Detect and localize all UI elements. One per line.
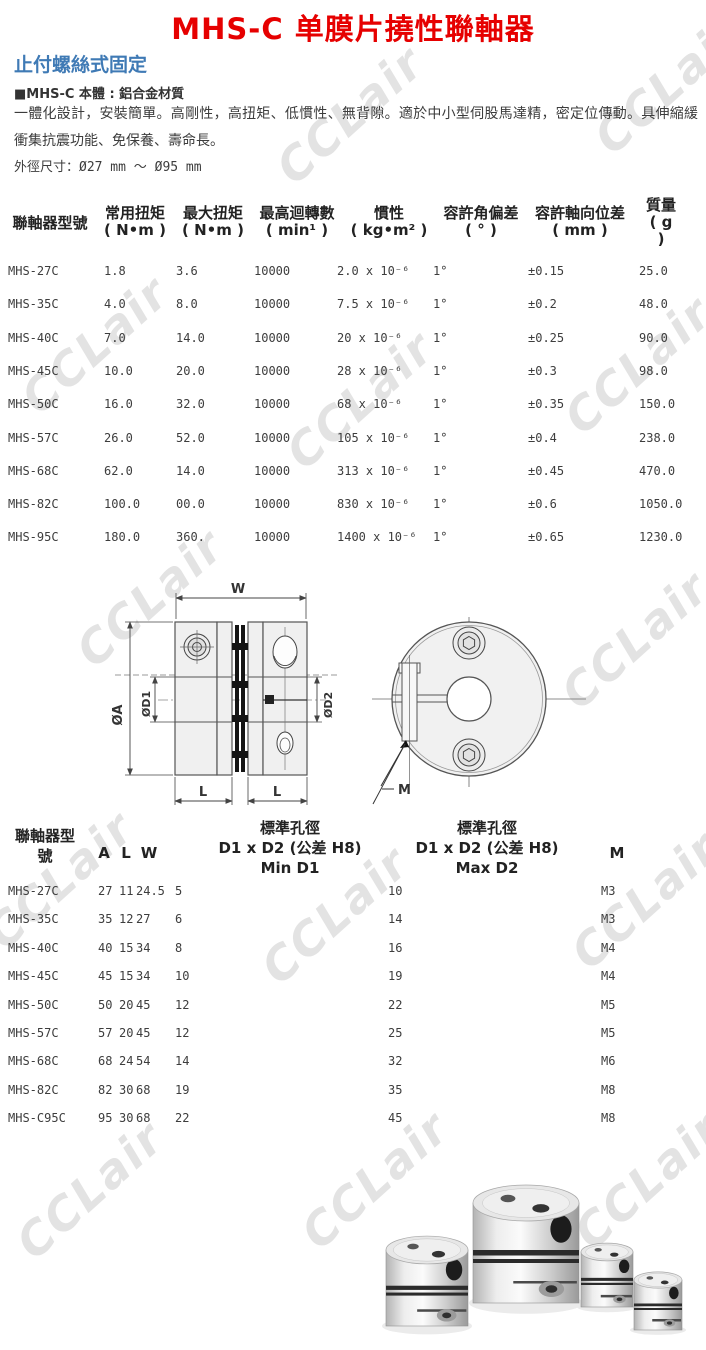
value-cell: 16.0 [104, 397, 133, 411]
value-cell: 11 [119, 884, 133, 898]
value-cell: ±0.2 [528, 297, 557, 311]
value-cell: 10000 [254, 431, 290, 445]
value-cell: 30 [119, 1111, 133, 1125]
value-cell: 5 [175, 884, 182, 898]
dim-label-l-left: L [199, 785, 207, 800]
model-cell: MHS-27C [8, 884, 59, 898]
product-description: 一體化設計，安裝簡單。高剛性，高扭矩、低慣性、無背隙。適於中小型伺股馬達精，密定… [14, 101, 698, 155]
model-cell: MHS-57C [8, 431, 59, 445]
value-cell: ±0.15 [528, 264, 564, 278]
value-cell: M8 [601, 1083, 615, 1097]
dim-label-l-right: L [273, 785, 281, 800]
value-cell: 62.0 [104, 464, 133, 478]
value-cell: 150.0 [639, 397, 675, 411]
dim-label-w: W [231, 582, 245, 597]
value-cell: 14 [388, 912, 402, 926]
value-cell: 360. [176, 530, 205, 544]
value-cell: 1° [433, 297, 447, 311]
value-cell: 27 [136, 912, 150, 926]
value-cell: 45 [98, 969, 112, 983]
value-cell: 1050.0 [639, 497, 682, 511]
model-cell: MHS-40C [8, 331, 59, 345]
value-cell: 8.0 [176, 297, 198, 311]
value-cell: 105 x 10⁻⁶ [337, 431, 409, 445]
coupling-photo-item [382, 1236, 472, 1334]
value-cell: 68 [136, 1111, 150, 1125]
value-cell: 12 [175, 998, 189, 1012]
page-title: MHS-C 单膜片撓性聯軸器 [0, 6, 706, 48]
column-header: 聯軸器型號 [12, 215, 87, 232]
value-cell: 20 [119, 1026, 133, 1040]
column-header: 容許角偏差 ( ° ) [443, 205, 518, 239]
value-cell: 470.0 [639, 464, 675, 478]
value-cell: 1.8 [104, 264, 126, 278]
value-cell: 1° [433, 364, 447, 378]
value-cell: 10000 [254, 464, 290, 478]
column-header: 標準孔徑 D1 x D2 (公差 H8) Max D2 [415, 818, 558, 878]
value-cell: 52.0 [176, 431, 205, 445]
value-cell: 180.0 [104, 530, 140, 544]
coupling-photo-item [577, 1243, 637, 1312]
value-cell: 1° [433, 264, 447, 278]
value-cell: 20.0 [176, 364, 205, 378]
value-cell: M3 [601, 912, 615, 926]
value-cell: 15 [119, 969, 133, 983]
value-cell: 10000 [254, 530, 290, 544]
product-photo [295, 1150, 706, 1346]
value-cell: 14 [175, 1054, 189, 1068]
value-cell: 1° [433, 497, 447, 511]
value-cell: ±0.4 [528, 431, 557, 445]
value-cell: ±0.35 [528, 397, 564, 411]
coupling-photo-item [630, 1272, 686, 1335]
value-cell: 26.0 [104, 431, 133, 445]
value-cell: 57 [98, 1026, 112, 1040]
value-cell: 22 [388, 998, 402, 1012]
column-header: 常用扭矩 ( N•m ) [104, 205, 166, 239]
value-cell: 10 [388, 884, 402, 898]
value-cell: 1400 x 10⁻⁶ [337, 530, 416, 544]
value-cell: 10000 [254, 497, 290, 511]
value-cell: 45 [136, 998, 150, 1012]
value-cell: 100.0 [104, 497, 140, 511]
column-header: 標準孔徑 D1 x D2 (公差 H8) Min D1 [218, 818, 361, 878]
column-header: 最大扭矩 ( N•m ) [182, 205, 244, 239]
column-header: 聯軸器型 號 [15, 826, 75, 866]
value-cell: 14.0 [176, 331, 205, 345]
value-cell: 4.0 [104, 297, 126, 311]
model-cell: MHS-68C [8, 1054, 59, 1068]
value-cell: 238.0 [639, 431, 675, 445]
value-cell: 20 [119, 998, 133, 1012]
value-cell: ±0.6 [528, 497, 557, 511]
value-cell: M3 [601, 884, 615, 898]
value-cell: 12 [119, 912, 133, 926]
model-cell: MHS-40C [8, 941, 59, 955]
dim-label-m: M [398, 783, 411, 798]
value-cell: 10 [175, 969, 189, 983]
value-cell: 68 x 10⁻⁶ [337, 397, 402, 411]
value-cell: M4 [601, 941, 615, 955]
value-cell: 313 x 10⁻⁶ [337, 464, 409, 478]
value-cell: ±0.3 [528, 364, 557, 378]
value-cell: 12 [175, 1026, 189, 1040]
value-cell: 00.0 [176, 497, 205, 511]
value-cell: 48.0 [639, 297, 668, 311]
value-cell: 3.6 [176, 264, 198, 278]
coupling-photo-item [469, 1185, 583, 1314]
column-header: 質量 ( g ) [646, 197, 676, 248]
value-cell: 1° [433, 397, 447, 411]
front-view: M [372, 617, 586, 804]
value-cell: 25 [388, 1026, 402, 1040]
value-cell: M8 [601, 1111, 615, 1125]
value-cell: 19 [175, 1083, 189, 1097]
value-cell: 32 [388, 1054, 402, 1068]
value-cell: M6 [601, 1054, 615, 1068]
value-cell: 82 [98, 1083, 112, 1097]
column-header: A [98, 843, 110, 863]
model-cell: MHS-50C [8, 397, 59, 411]
value-cell: 45 [388, 1111, 402, 1125]
value-cell: 7.0 [104, 331, 126, 345]
value-cell: ±0.25 [528, 331, 564, 345]
value-cell: 14.0 [176, 464, 205, 478]
column-header: L [121, 843, 131, 863]
value-cell: 10000 [254, 397, 290, 411]
value-cell: 30 [119, 1083, 133, 1097]
model-cell: MHS-95C [8, 530, 59, 544]
value-cell: 95 [98, 1111, 112, 1125]
material-line: ■MHS-C 本體 : 鋁合金材質 [14, 83, 184, 102]
value-cell: 54 [136, 1054, 150, 1068]
subtitle-fixing-type: 止付螺絲式固定 [14, 50, 147, 77]
dim-label-od2: ØD2 [322, 692, 335, 718]
model-cell: MHS-45C [8, 969, 59, 983]
model-cell: MHS-35C [8, 297, 59, 311]
value-cell: 10.0 [104, 364, 133, 378]
value-cell: 25.0 [639, 264, 668, 278]
column-header: 最高迴轉數 ( min¹ ) [259, 205, 334, 239]
value-cell: 28 x 10⁻⁶ [337, 364, 402, 378]
value-cell: 19 [388, 969, 402, 983]
model-cell: MHS-27C [8, 264, 59, 278]
value-cell: 8 [175, 941, 182, 955]
value-cell: 24 [119, 1054, 133, 1068]
model-cell: MHS-82C [8, 1083, 59, 1097]
value-cell: 35 [388, 1083, 402, 1097]
value-cell: 20 x 10⁻⁶ [337, 331, 402, 345]
value-cell: M5 [601, 1026, 615, 1040]
value-cell: 10000 [254, 264, 290, 278]
value-cell: 32.0 [176, 397, 205, 411]
column-header: M [610, 843, 625, 863]
value-cell: 10000 [254, 364, 290, 378]
value-cell: 40 [98, 941, 112, 955]
value-cell: ±0.65 [528, 530, 564, 544]
value-cell: M4 [601, 969, 615, 983]
value-cell: 24.5 [136, 884, 165, 898]
model-cell: MHS-45C [8, 364, 59, 378]
value-cell: 1° [433, 464, 447, 478]
value-cell: 10000 [254, 297, 290, 311]
model-cell: MHS-50C [8, 998, 59, 1012]
value-cell: 98.0 [639, 364, 668, 378]
column-header: W [141, 843, 158, 863]
value-cell: 1° [433, 431, 447, 445]
value-cell: 1230.0 [639, 530, 682, 544]
value-cell: 35 [98, 912, 112, 926]
model-cell: MHS-35C [8, 912, 59, 926]
value-cell: 2.0 x 10⁻⁶ [337, 264, 409, 278]
value-cell: 22 [175, 1111, 189, 1125]
value-cell: 830 x 10⁻⁶ [337, 497, 409, 511]
model-cell: MHS-57C [8, 1026, 59, 1040]
technical-drawing: W ØA ØD1 ØD2 L L [70, 555, 640, 820]
outer-diameter-range: 外徑尺寸：Ø27 mm ～ Ø95 mm [14, 156, 202, 175]
column-header: 慣性 ( kg•m² ) [351, 205, 428, 239]
value-cell: 34 [136, 969, 150, 983]
value-cell: 1° [433, 530, 447, 544]
value-cell: 1° [433, 331, 447, 345]
model-cell: MHS-C95C [8, 1111, 66, 1125]
value-cell: 45 [136, 1026, 150, 1040]
model-cell: MHS-82C [8, 497, 59, 511]
model-cell: MHS-68C [8, 464, 59, 478]
value-cell: 6 [175, 912, 182, 926]
value-cell: 50 [98, 998, 112, 1012]
diaphragm [232, 625, 248, 772]
dim-label-oa: ØA [111, 705, 126, 726]
value-cell: 27 [98, 884, 112, 898]
column-header: 容許軸向位差 ( mm ) [535, 205, 625, 239]
value-cell: 34 [136, 941, 150, 955]
value-cell: 7.5 x 10⁻⁶ [337, 297, 409, 311]
value-cell: ±0.45 [528, 464, 564, 478]
value-cell: 10000 [254, 331, 290, 345]
value-cell: 15 [119, 941, 133, 955]
value-cell: 16 [388, 941, 402, 955]
dim-label-od1: ØD1 [140, 691, 153, 717]
value-cell: 90.0 [639, 331, 668, 345]
value-cell: M5 [601, 998, 615, 1012]
value-cell: 68 [136, 1083, 150, 1097]
value-cell: 68 [98, 1054, 112, 1068]
